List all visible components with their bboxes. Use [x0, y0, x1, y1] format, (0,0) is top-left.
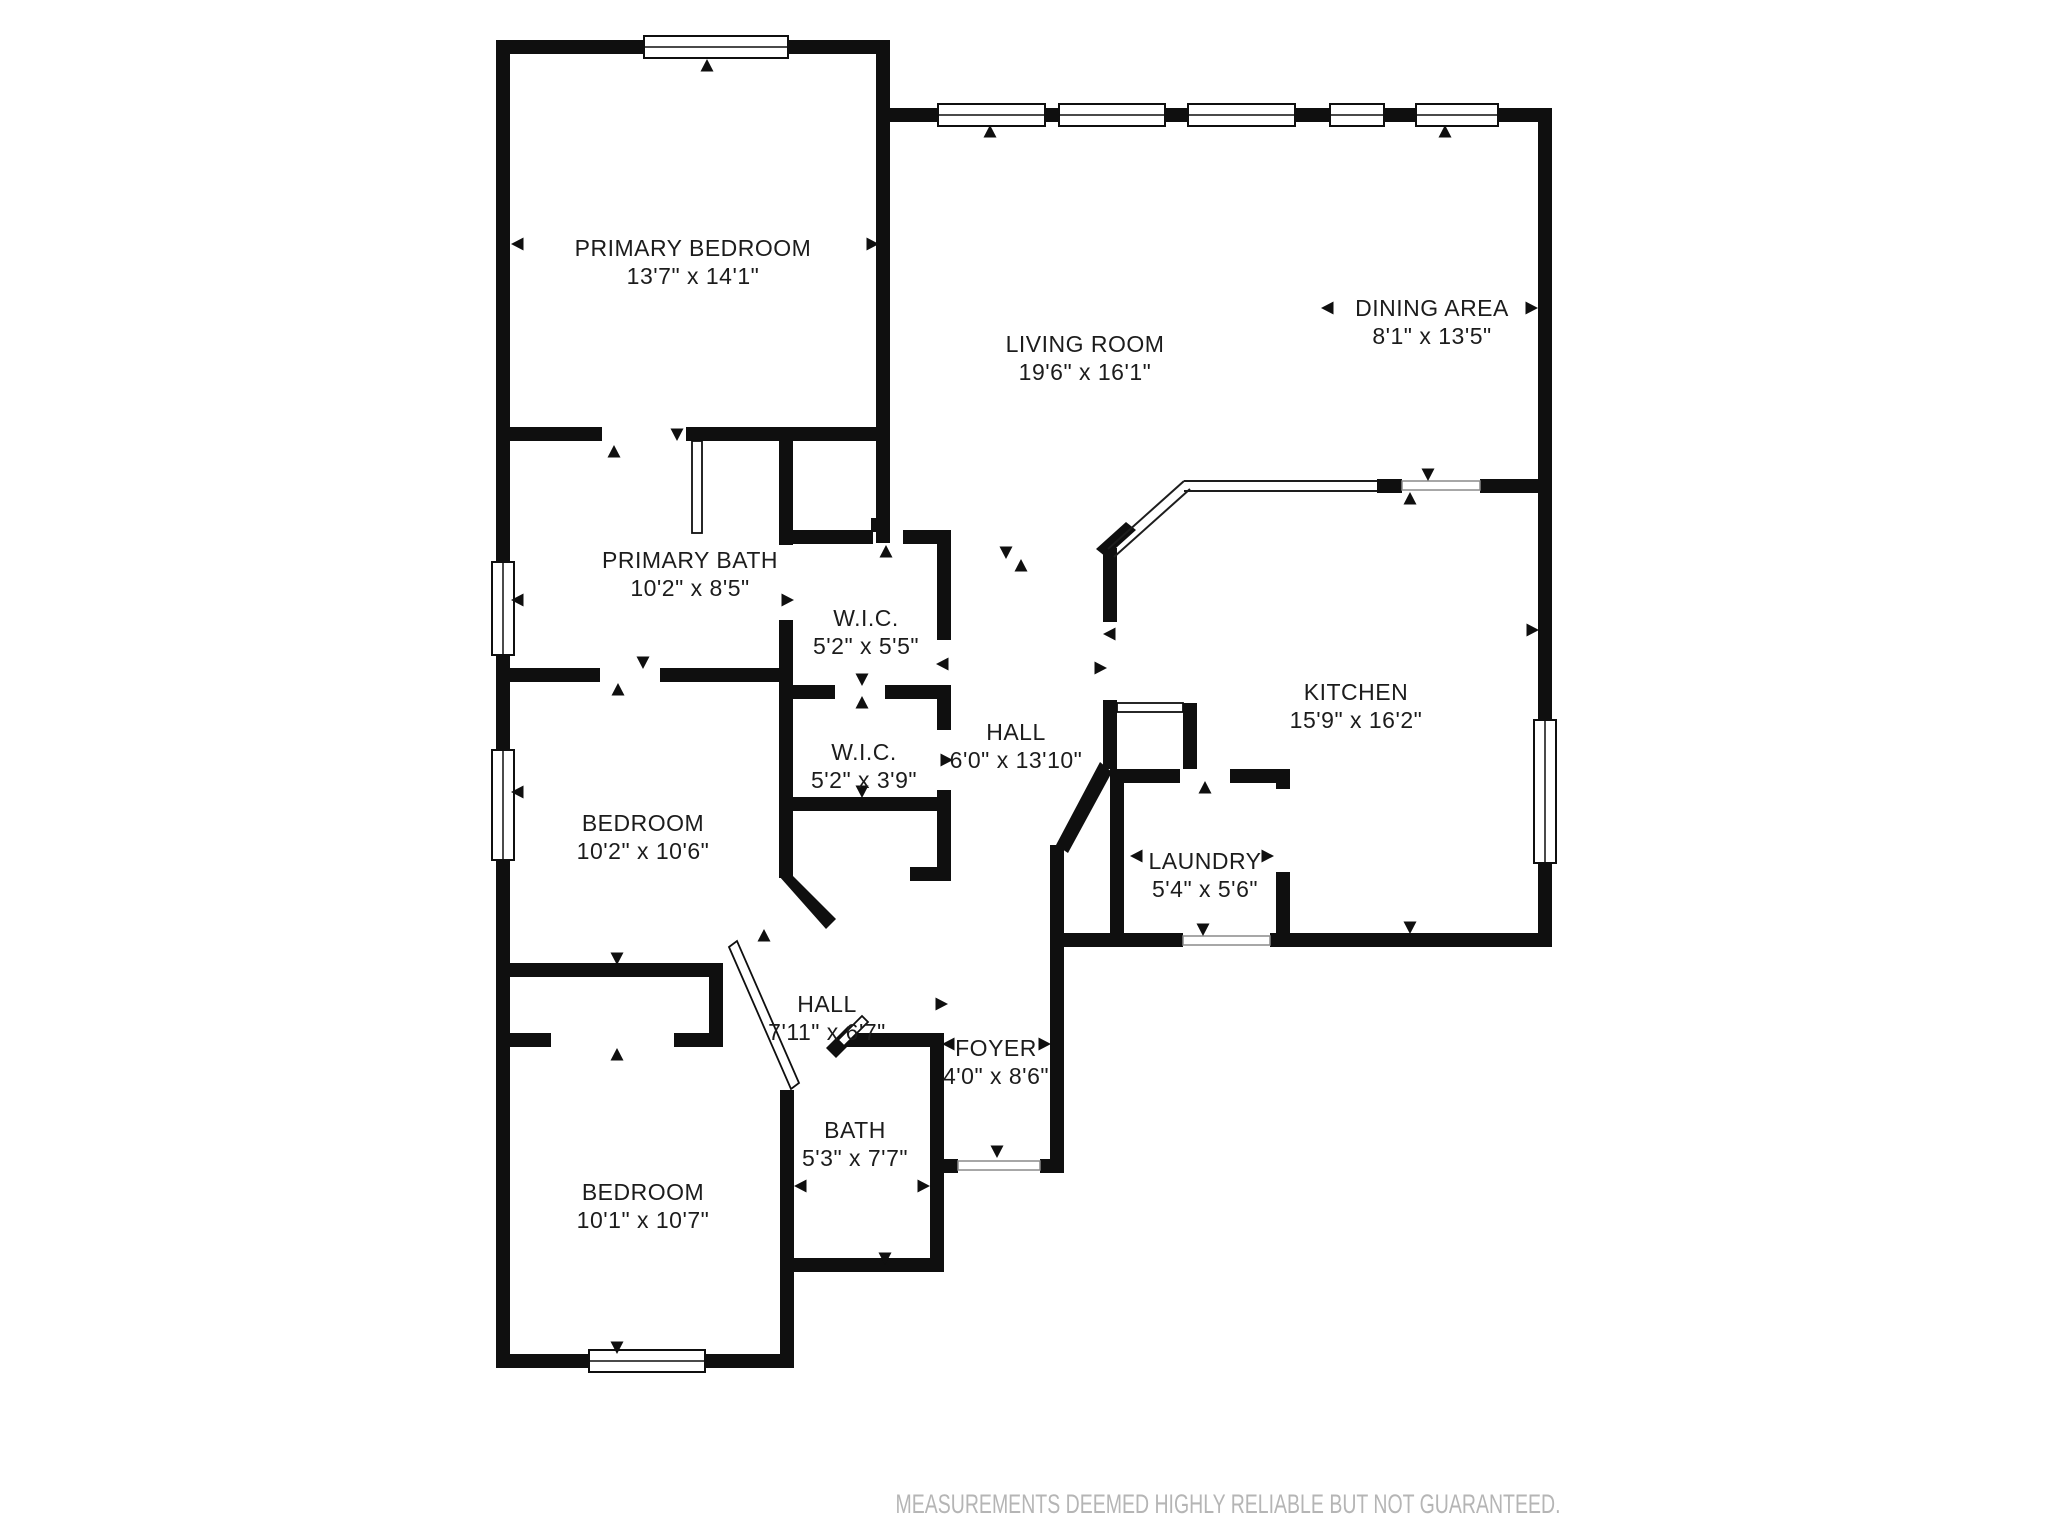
wall-segment	[1276, 872, 1290, 947]
room-dims: 5'4" x 5'6"	[1152, 876, 1258, 902]
wall-segment	[496, 40, 510, 562]
wall-segment	[779, 797, 937, 811]
window	[938, 104, 1045, 126]
door-leaf	[1117, 703, 1183, 712]
wall-segment	[1480, 479, 1538, 493]
room-name: LIVING ROOM	[1006, 331, 1165, 357]
room-dims: 19'6" x 16'1"	[1019, 359, 1152, 385]
wall-segment	[496, 860, 510, 1368]
room-name: BEDROOM	[582, 1179, 704, 1205]
wall-segment	[510, 963, 723, 977]
wall-segment	[496, 655, 510, 750]
room-dims: 8'1" x 13'5"	[1372, 323, 1491, 349]
room-dims: 5'2" x 5'5"	[813, 633, 919, 659]
wall-segment	[1538, 108, 1552, 720]
room-name: LAUNDRY	[1149, 848, 1262, 874]
room-name: PRIMARY BEDROOM	[575, 235, 812, 261]
wall-segment	[937, 688, 951, 730]
wall-segment	[1165, 108, 1188, 122]
wall-segment	[876, 108, 938, 122]
wall-segment	[1295, 108, 1330, 122]
room-dims: 6'0" x 13'10"	[950, 747, 1083, 773]
wall-segment	[779, 620, 793, 677]
room-name: FOYER	[955, 1035, 1037, 1061]
window	[1188, 104, 1295, 126]
room-name: BATH	[824, 1117, 886, 1143]
wall-segment	[674, 1033, 723, 1047]
window	[1059, 104, 1165, 126]
door-threshold	[1402, 481, 1480, 490]
disclaimer-text: MEASUREMENTS DEEMED HIGHLY RELIABLE BUT …	[896, 1489, 1561, 1519]
window	[492, 562, 514, 655]
wall-segment	[1270, 933, 1552, 947]
room-dims: 5'2" x 3'9"	[811, 767, 917, 793]
wall-segment	[686, 427, 876, 441]
wall-segment	[496, 40, 644, 54]
wall-segment	[779, 441, 793, 545]
window	[644, 36, 788, 58]
room-dims: 7'11" x 6'7"	[768, 1019, 886, 1045]
wall-segment	[1050, 845, 1064, 1173]
wall-segment	[1103, 700, 1117, 769]
window	[1330, 104, 1384, 126]
wall-segment	[937, 544, 951, 640]
wall-segment	[1377, 479, 1402, 493]
room-dims: 10'2" x 8'5"	[630, 575, 749, 601]
window	[1534, 720, 1556, 863]
wall-segment	[910, 867, 951, 881]
room-dims: 10'1" x 10'7"	[577, 1207, 710, 1233]
wall-segment	[871, 518, 887, 532]
wall-segment	[930, 1033, 944, 1272]
entry-door-threshold	[958, 1161, 1040, 1170]
wall-segment	[1183, 703, 1197, 769]
wall-segment	[510, 427, 602, 441]
wall-segment	[705, 1354, 794, 1368]
wall-segment	[1110, 769, 1180, 783]
wall-segment	[788, 40, 890, 54]
room-name: HALL	[797, 991, 857, 1017]
room-dims: 5'3" x 7'7"	[802, 1145, 908, 1171]
wall-segment	[780, 1258, 944, 1272]
room-dims: 10'2" x 10'6"	[577, 838, 710, 864]
floor-plan-page: PRIMARY BEDROOM 13'7" x 14'1" LIVING ROO…	[0, 0, 2048, 1536]
room-name: W.I.C.	[831, 739, 897, 765]
wall-segment	[779, 530, 873, 544]
floor-plan-svg: PRIMARY BEDROOM 13'7" x 14'1" LIVING ROO…	[0, 0, 2048, 1536]
room-name: BEDROOM	[582, 810, 704, 836]
wall-segment	[1384, 108, 1416, 122]
door-leaf	[692, 441, 702, 533]
wall-segment	[1110, 783, 1124, 947]
room-dims: 15'9" x 16'2"	[1290, 707, 1423, 733]
window	[492, 750, 514, 860]
wall-segment	[1276, 769, 1290, 789]
wall-segment	[780, 1090, 794, 1368]
wall-segment	[903, 530, 951, 544]
wall-segment	[496, 1354, 589, 1368]
wall-segment	[779, 677, 793, 878]
door-threshold	[1183, 936, 1270, 945]
wall-segment	[1045, 108, 1059, 122]
window	[1416, 104, 1498, 126]
room-dims: 13'7" x 14'1"	[627, 263, 760, 289]
room-name: PRIMARY BATH	[602, 547, 778, 573]
wall-segment	[1040, 1159, 1064, 1173]
room-name: KITCHEN	[1304, 679, 1408, 705]
window	[589, 1350, 705, 1372]
room-name: W.I.C.	[833, 605, 899, 631]
wall-segment	[1103, 548, 1117, 622]
wall-segment	[510, 668, 600, 682]
wall-segment	[660, 668, 779, 682]
room-name: DINING AREA	[1355, 295, 1509, 321]
wall-segment	[510, 1033, 551, 1047]
room-name: HALL	[986, 719, 1046, 745]
room-dims: 4'0" x 8'6"	[943, 1063, 1049, 1089]
